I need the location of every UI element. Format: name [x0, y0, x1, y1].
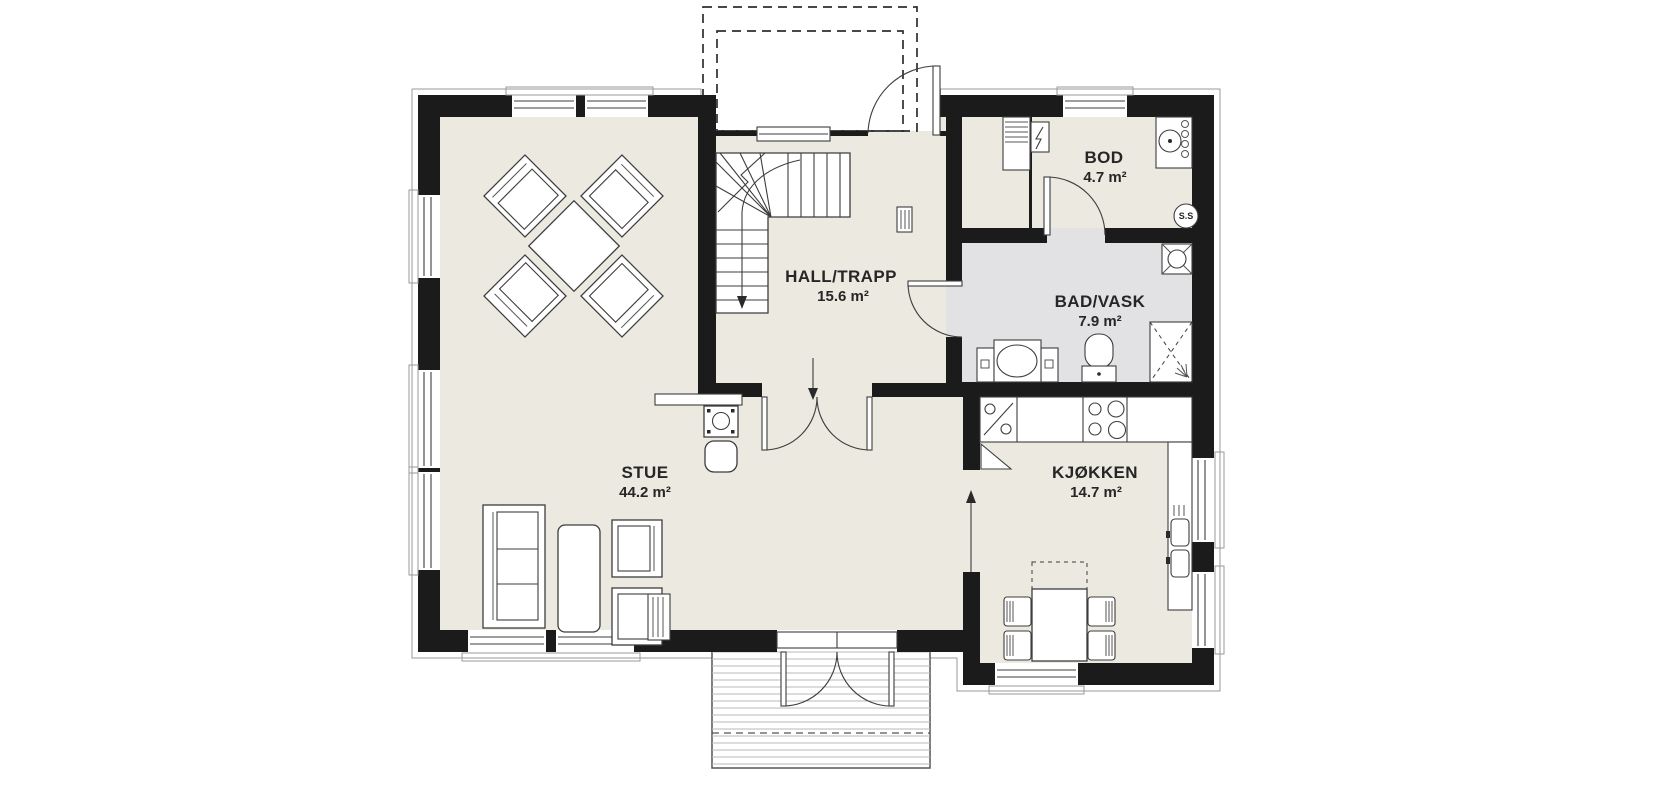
hall-name: HALL/TRAPP [785, 267, 897, 286]
shaft-label: S.S [1179, 211, 1194, 221]
stue-area: 44.2 m² [619, 484, 671, 501]
floor-plan: S.S [0, 0, 1670, 800]
window-left-2 [409, 365, 440, 473]
kjokken-name: KJØKKEN [1052, 463, 1138, 482]
terrace-deck [712, 645, 930, 768]
window-left-1 [409, 190, 440, 283]
dining-table [1032, 589, 1087, 661]
shower [1150, 322, 1192, 382]
bad-name: BAD/VASK [1055, 292, 1146, 311]
sofa [483, 505, 545, 628]
wall-stue-kitchen-upper [963, 397, 980, 470]
fan-unit [1162, 244, 1192, 274]
radiator [648, 594, 670, 640]
window-left-3 [409, 467, 440, 575]
window-bod [1057, 87, 1133, 117]
window-bottom-1 [468, 630, 546, 652]
electrical-panel [1031, 122, 1049, 152]
stue-name: STUE [622, 463, 669, 482]
wall-hall-bath [946, 117, 962, 285]
floor-plan-drawing: S.S [0, 0, 1670, 800]
vent-shaft [1003, 117, 1030, 170]
armchair-1 [612, 520, 662, 577]
window-right-2 [1192, 566, 1224, 654]
bad-area: 7.9 m² [1078, 313, 1121, 330]
window-entry [757, 127, 830, 141]
bod-area: 4.7 m² [1083, 169, 1126, 186]
window-top-1 [512, 95, 576, 117]
hall-area: 15.6 m² [817, 288, 869, 305]
bod-name: BOD [1085, 148, 1124, 167]
utility-unit [1156, 117, 1192, 168]
kjokken-area: 14.7 m² [1070, 484, 1122, 501]
hall-radiator [897, 207, 912, 232]
wall-stue-kitchen-lower [963, 572, 980, 685]
window-right-1 [1192, 452, 1224, 548]
sofa-group [483, 505, 670, 645]
porch-floor [716, 95, 940, 131]
wall-stue-hall [698, 117, 716, 396]
window-dining [989, 663, 1084, 694]
wood-stove [705, 441, 737, 472]
shaft-badge: S.S [1174, 204, 1198, 228]
wall-bath-bod [962, 228, 1047, 243]
toilet [1082, 334, 1116, 382]
floor-bod [946, 117, 1192, 228]
wall-bath-kitchen [946, 382, 1192, 397]
coffee-table [558, 525, 600, 632]
